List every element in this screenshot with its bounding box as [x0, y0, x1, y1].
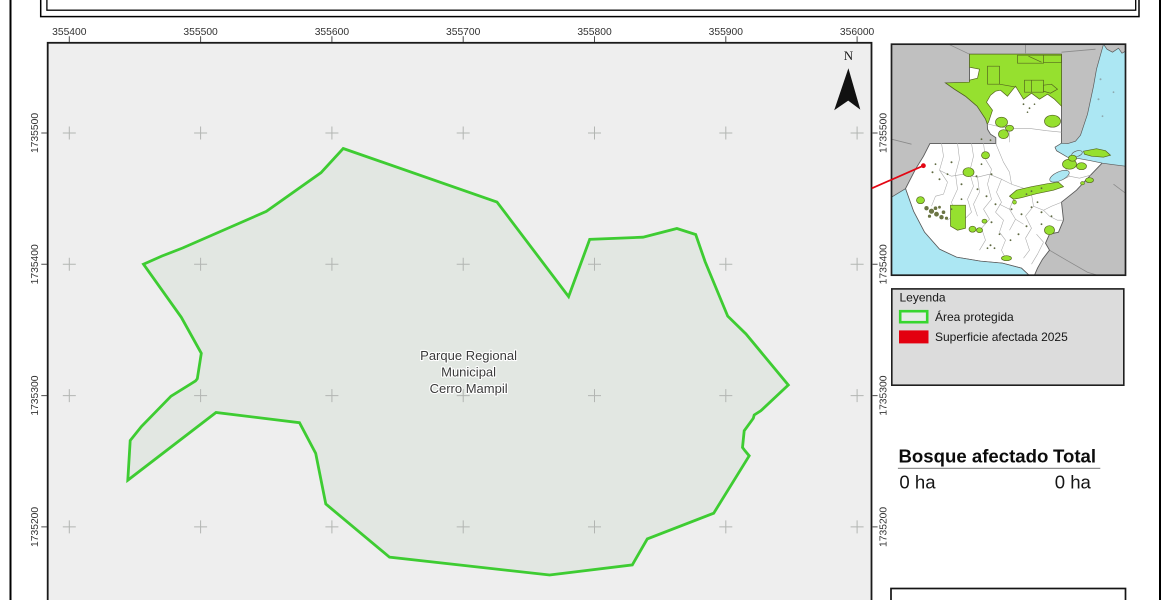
svg-text:1735300: 1735300 — [879, 375, 890, 415]
svg-text:355700: 355700 — [446, 27, 481, 38]
svg-text:Bosque afectado: Bosque afectado — [899, 446, 1049, 467]
svg-text:355800: 355800 — [577, 27, 612, 38]
svg-text:Superficie afectada 2025: Superficie afectada 2025 — [935, 330, 1068, 344]
svg-text:Cerro Mampil: Cerro Mampil — [430, 381, 508, 396]
svg-text:Total: Total — [1053, 446, 1096, 467]
svg-text:1735500: 1735500 — [879, 113, 890, 153]
svg-text:1735500: 1735500 — [30, 113, 41, 153]
svg-text:Municipal: Municipal — [441, 364, 496, 379]
svg-text:355600: 355600 — [315, 27, 350, 38]
svg-text:1735400: 1735400 — [30, 244, 41, 284]
svg-text:0 ha: 0 ha — [1055, 471, 1092, 492]
svg-text:355500: 355500 — [183, 27, 218, 38]
svg-text:Leyenda: Leyenda — [900, 291, 946, 305]
svg-text:1735200: 1735200 — [30, 507, 41, 547]
svg-text:0 ha: 0 ha — [899, 471, 936, 492]
svg-text:356000: 356000 — [840, 27, 875, 38]
svg-text:Parque Regional: Parque Regional — [420, 348, 517, 363]
svg-text:Área protegida: Área protegida — [935, 309, 1014, 324]
svg-text:1735300: 1735300 — [30, 375, 41, 415]
svg-text:N: N — [844, 48, 854, 63]
svg-text:355900: 355900 — [709, 27, 744, 38]
svg-text:1735200: 1735200 — [879, 507, 890, 547]
svg-text:355400: 355400 — [52, 27, 87, 38]
svg-text:1735400: 1735400 — [879, 244, 890, 284]
